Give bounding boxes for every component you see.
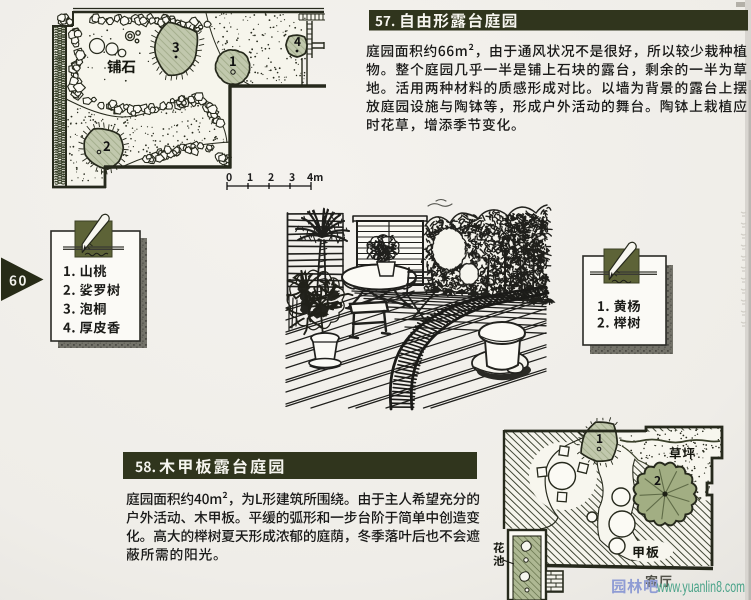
svg-text:www.yuanlin8.com: www.yuanlin8.com <box>656 579 745 596</box>
